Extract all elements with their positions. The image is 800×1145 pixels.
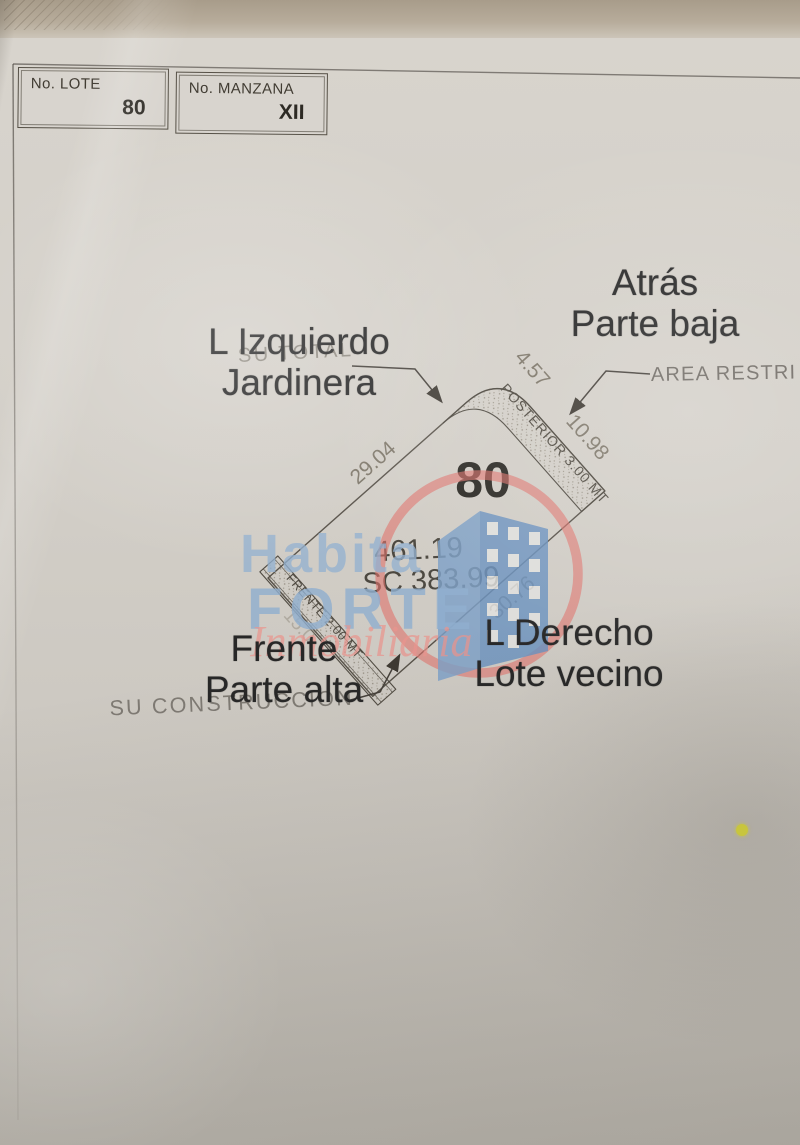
lot-plan-drawing: 29.04 30.76 4.57 10.98 POSTERIOR 3.00 MT… [0, 0, 800, 1145]
lote-box: No. LOTE 80 [17, 67, 169, 130]
manzana-label: No. MANZANA [189, 80, 315, 98]
manzana-value: XII [188, 100, 314, 125]
annotation-left-side: L Izquierdo Jardinera [185, 321, 413, 403]
annotation-right-side: L Derecho Lote vecino [460, 612, 678, 694]
lote-value: 80 [30, 95, 155, 120]
form-left-border-line [13, 64, 18, 1120]
area-restringida-leader-arrow [571, 371, 650, 413]
area-sc-value: SC 383.99 [362, 561, 501, 600]
lot-number: 80 [455, 452, 511, 508]
annotation-front-side: Frente Parte alta [178, 628, 390, 710]
lote-label: No. LOTE [31, 75, 156, 93]
annotation-back-side: Atrás Parte baja [550, 262, 760, 344]
photographed-lot-plan-document: 29.04 30.76 4.57 10.98 POSTERIOR 3.00 MT… [0, 0, 800, 1145]
area-restringida-label: AREA RESTRI [651, 361, 797, 386]
yellow-dot-marker [736, 824, 748, 836]
manzana-box: No. MANZANA XII [175, 72, 328, 136]
dim-back-curve: 4.57 [510, 346, 554, 392]
dim-left-edge: 29.04 [346, 437, 401, 489]
